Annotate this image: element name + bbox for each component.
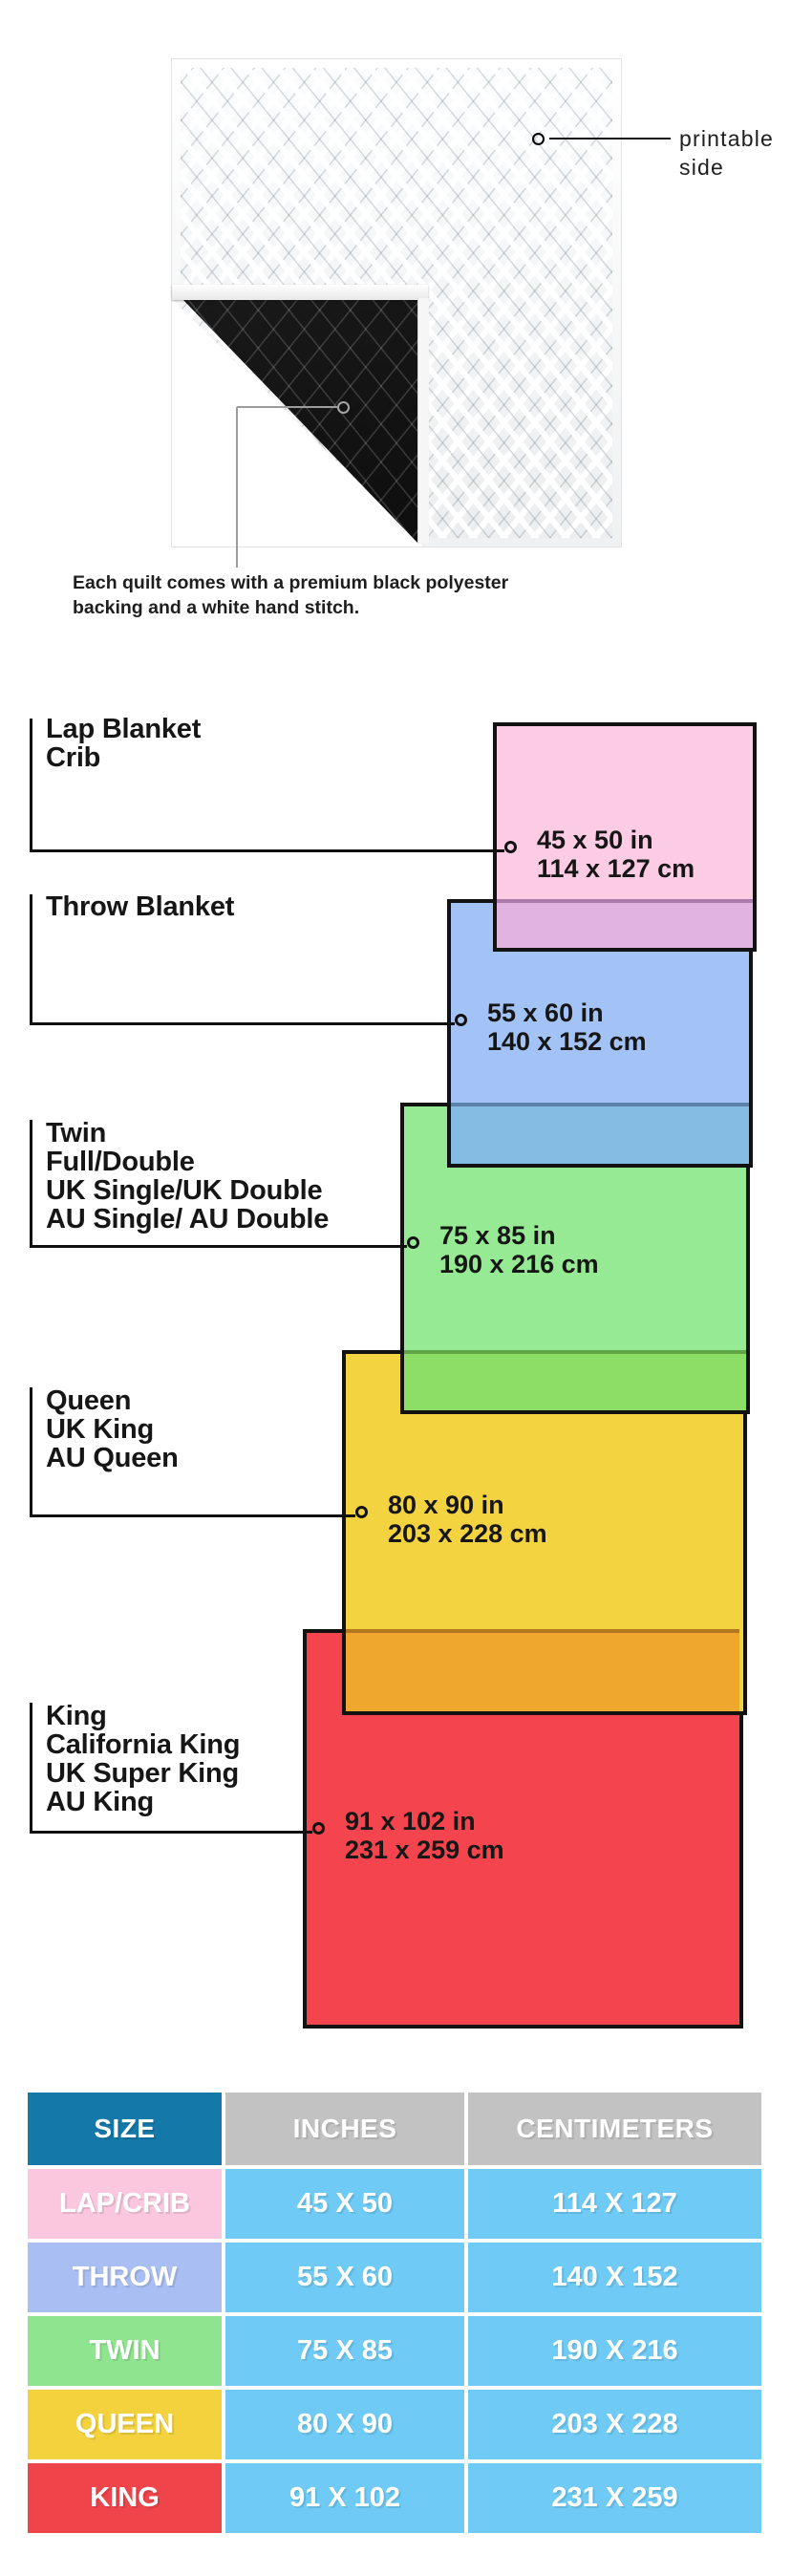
table-row-throw-centimeters: 140 X 152 [468,2243,761,2312]
size-value-queen: 80 x 90 in 203 x 228 cm [388,1491,547,1548]
leader-line-twin [30,1120,32,1248]
size-table: SIZE INCHES CENTIMETERS LAP/CRIB 45 X 50… [28,2093,761,2533]
size-label-king: King California King UK Super King AU Ki… [46,1702,240,1816]
leader-dot-throw-icon [455,1014,467,1026]
backing-leader-line-vertical [236,407,238,568]
quilt-side-binding [417,298,429,544]
printable-side-marker-icon [532,133,545,145]
table-row-lap-size: LAP/CRIB [28,2169,222,2239]
table-row-twin-centimeters: 190 X 216 [468,2316,761,2386]
table-row-queen-centimeters: 203 X 228 [468,2390,761,2459]
leader-dot-king-icon [312,1822,325,1835]
leader-dot-twin-icon [407,1236,419,1249]
printable-side-leader-line [549,138,671,140]
quilt-product-image [172,59,621,547]
leader-dot-lap-icon [504,841,517,853]
leader-line-king [30,1703,32,1834]
table-header-inches: INCHES [225,2093,464,2165]
overlap-twin-queen [404,1350,746,1410]
leader-line-lap-horizontal [30,849,504,852]
overlap-throw-twin [451,1103,749,1164]
printable-side-label: printable side [679,124,774,182]
size-label-throw: Throw Blanket [46,892,234,921]
leader-line-lap [30,719,32,852]
table-row-king-inches: 91 X 102 [225,2463,464,2533]
leader-line-throw [30,894,32,1025]
table-row-king-centimeters: 231 X 259 [468,2463,761,2533]
table-header-size: SIZE [28,2093,222,2165]
quilt-fold-binding [172,285,428,300]
table-row-throw-inches: 55 X 60 [225,2243,464,2312]
overlap-queen-king [346,1629,739,1711]
size-label-lap: Lap Blanket Crib [46,715,201,772]
size-label-queen: Queen UK King AU Queen [46,1386,179,1472]
backing-leader-line-horizontal [237,406,338,408]
backing-marker-icon [337,401,350,414]
table-row-throw-size: THROW [28,2243,222,2312]
table-row-queen-size: QUEEN [28,2390,222,2459]
product-caption: Each quilt comes with a premium black po… [73,570,508,620]
table-header-centimeters: CENTIMETERS [468,2093,761,2165]
table-row-king-size: KING [28,2463,222,2533]
leader-line-throw-horizontal [30,1022,455,1025]
size-value-twin: 75 x 85 in 190 x 216 cm [439,1221,599,1278]
size-value-throw: 55 x 60 in 140 x 152 cm [487,998,647,1056]
leader-line-queen-horizontal [30,1514,355,1517]
leader-dot-queen-icon [355,1506,368,1518]
size-label-twin: Twin Full/Double UK Single/UK Double AU … [46,1119,329,1234]
leader-line-king-horizontal [30,1831,312,1834]
size-value-lap: 45 x 50 in 114 x 127 cm [537,826,695,883]
leader-line-twin-horizontal [30,1245,407,1248]
quilt-size-infographic: printable side Each quilt comes with a p… [0,0,791,2576]
overlap-lap-throw [497,899,753,948]
table-row-queen-inches: 80 X 90 [225,2390,464,2459]
size-value-king: 91 x 102 in 231 x 259 cm [345,1807,504,1864]
leader-line-queen [30,1387,32,1517]
table-row-lap-inches: 45 X 50 [225,2169,464,2239]
table-row-twin-size: TWIN [28,2316,222,2386]
table-row-twin-inches: 75 X 85 [225,2316,464,2386]
table-row-lap-centimeters: 114 X 127 [468,2169,761,2239]
